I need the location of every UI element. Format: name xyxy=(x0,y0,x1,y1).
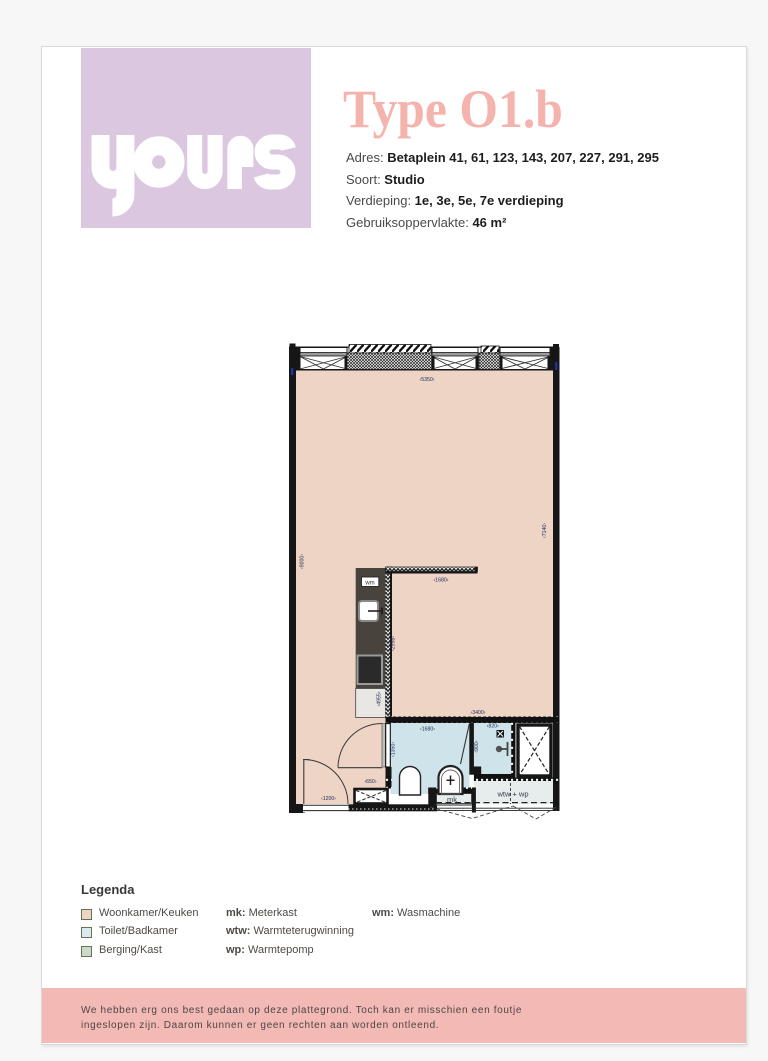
svg-text:‹5350›: ‹5350› xyxy=(420,377,435,383)
svg-text:wm: wm xyxy=(364,581,374,587)
svg-text:‹1350›: ‹1350› xyxy=(391,742,397,757)
svg-text:‹2998›: ‹2998› xyxy=(391,636,397,651)
svg-text:‹4955›: ‹4955› xyxy=(377,691,383,706)
svg-text:‹7140›: ‹7140› xyxy=(542,523,548,538)
svg-text:‹1680›: ‹1680› xyxy=(434,578,449,584)
svg-text:‹9000›: ‹9000› xyxy=(300,554,306,569)
svg-text:wtw + wp: wtw + wp xyxy=(496,790,528,799)
svg-text:‹3400›: ‹3400› xyxy=(471,710,486,716)
svg-text:‹650›: ‹650› xyxy=(364,779,376,785)
svg-text:‹1200›: ‹1200› xyxy=(321,796,336,802)
svg-text:‹820›: ‹820› xyxy=(487,724,499,730)
svg-text:‹1680›: ‹1680› xyxy=(420,727,435,733)
svg-text:‹900›: ‹900› xyxy=(474,740,480,752)
